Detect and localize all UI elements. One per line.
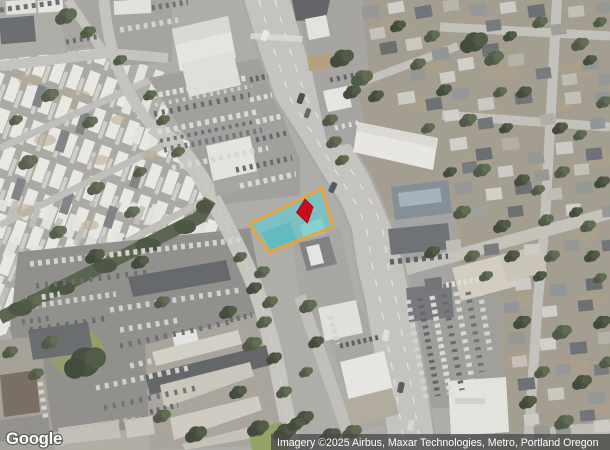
svg-text:Google: Google (6, 429, 62, 448)
svg-text:Imagery ©2025 Airbus, Maxar Te: Imagery ©2025 Airbus, Maxar Technologies… (277, 437, 599, 449)
